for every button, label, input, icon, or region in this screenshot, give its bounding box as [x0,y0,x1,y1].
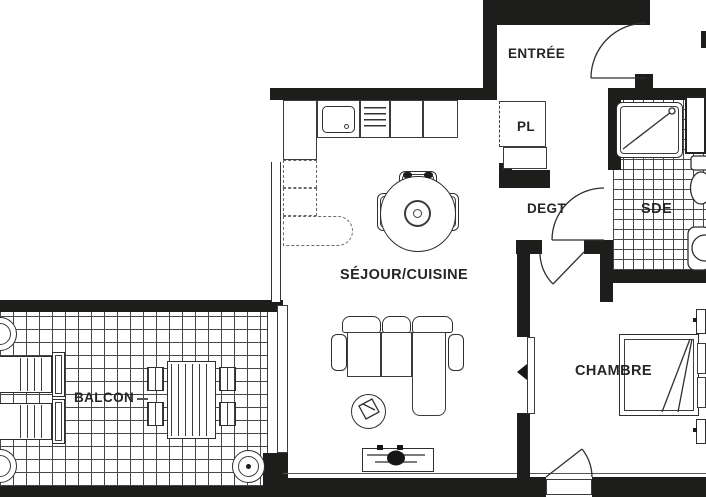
balcony-chair-2 [147,402,164,426]
bedroom-bottom-wall-face [530,473,706,474]
kitchen-undercounter-appliance-2 [283,188,317,216]
living-bottom-wall-face [283,473,517,474]
closet-pl-shelf [503,147,547,169]
wall-balcony-bottom [0,486,288,497]
bedroom-french-window-sill [546,479,592,495]
room-label-pl: PL [517,119,535,134]
sofa-armrest-right [448,334,464,371]
wall-bathroom-bottom [608,270,706,283]
living-left-window [271,162,281,302]
balcony-table-slats [171,364,212,436]
room-label-entree: ENTRÉE [508,46,565,61]
nightstand-top [696,309,706,334]
dining-table-hub [413,209,422,218]
wall-tv [517,364,527,380]
nightstand-bottom [696,419,706,444]
balcony-chair-4 [219,402,236,426]
nightstand-bottom-knob [693,428,697,432]
kitchen-undercounter-appliance-1 [283,160,317,188]
room-label-balcon: BALCON [74,390,134,405]
balcony-edge-strip [267,312,277,453]
room-label-sde: SDE [641,201,672,217]
sofa-back-cushion-2 [382,316,411,333]
room-label-chambre: CHAMBRE [575,363,652,379]
balcony-plant-bottom-right-center [246,464,251,469]
sofa-seat-2 [381,332,412,377]
dining-chair-grip-right [424,172,433,178]
sun-lounger-1-backrest [52,352,65,397]
wall-bedroom-bottom-left [530,477,546,497]
wall-closet-stub-horizontal [512,170,550,188]
balcony-label-leader-line [137,398,148,400]
kitchen-sink-drain [344,124,349,129]
kitchen-sink-basin [322,106,355,133]
entry-door-swing [591,23,646,78]
sofa-back-cushion-3 [412,316,453,333]
wall-entry-top [483,0,650,25]
shower-tray-inner [620,106,679,154]
bedroom-door-swing [540,252,584,284]
room-label-sejour-cuisine: SÉJOUR/CUISINE [340,267,468,283]
balcony-chair-1 [147,367,164,391]
sofa-armrest-left [331,334,347,371]
sofa-back-cushion-1 [342,316,381,333]
sofa-chaise-longue [412,332,446,416]
sofa-seat-1 [347,332,381,377]
bathroom-duct-niche [685,96,706,154]
balcony-sliding-window [277,305,288,453]
kitchen-cabinet-3 [390,100,423,138]
sun-lounger-2-pleats [20,405,44,438]
sun-lounger-2-backrest [52,399,65,444]
dining-chair-grip-left [403,172,412,178]
kitchen-refrigerator [283,216,353,246]
wall-bedroom-door-right-stub [584,240,612,254]
sun-lounger-1-pleats [20,358,44,391]
wall-living-right-upper [517,252,530,337]
tv-stand [362,448,434,472]
wall-kitchen-top [270,88,497,100]
kitchen-hob-grill [364,107,386,129]
floor-plan: ENTRÉE PL DEGT SDE SÉJOUR/CUISINE CHAMBR… [0,0,706,497]
wall-bedroom-bottom-right [592,477,706,497]
wall-right-edge-fragment [701,31,706,48]
wall-living-bottom [270,478,530,497]
sliding-door-panel [527,337,535,414]
wall-balcony-top [0,300,283,312]
nightstand-top-knob [693,318,697,322]
room-label-degt: DEGT [527,201,566,216]
kitchen-corner-cabinet [283,100,317,160]
living-plant-table [351,394,386,429]
kitchen-cabinet-4 [423,100,458,138]
bed-pillow-2 [697,377,706,408]
bed-pillow-1 [697,343,706,374]
balcony-chair-3 [219,367,236,391]
